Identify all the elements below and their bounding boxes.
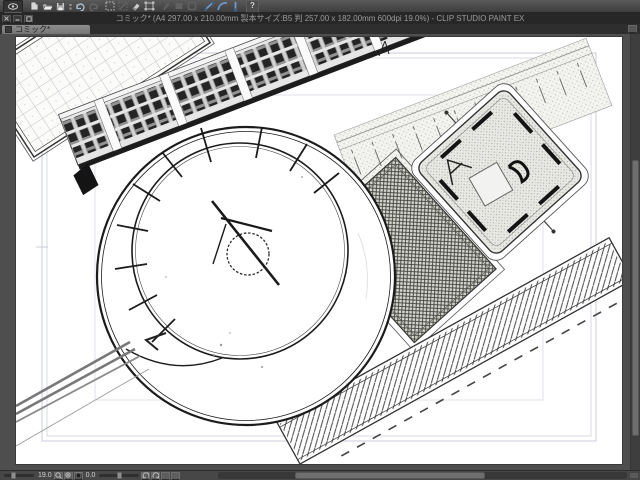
vertical-scrollbar-thumb[interactable]	[632, 160, 639, 436]
select-area-button[interactable]	[104, 1, 116, 12]
deselect-icon	[118, 1, 128, 11]
eye-button[interactable]	[3, 0, 23, 13]
new-file-button[interactable]	[28, 1, 40, 12]
rotation-slider[interactable]	[99, 474, 139, 477]
horizontal-scrollbar-thumb[interactable]	[295, 472, 485, 479]
undo-icon	[75, 2, 86, 11]
rotate-right-button[interactable]	[151, 472, 160, 480]
toolbar-overflow-button[interactable]	[67, 1, 73, 12]
help-button[interactable]: ?	[246, 0, 259, 13]
status-bar: 19.0 0.0	[0, 470, 640, 480]
shape-disabled-icon	[187, 1, 197, 11]
flip-horizontal-button[interactable]	[161, 472, 170, 480]
canvas-tab-bar: コミック*	[0, 24, 640, 34]
open-folder-icon	[42, 2, 53, 11]
disabled-tool-b-button[interactable]	[173, 1, 185, 12]
tab-comic[interactable]: コミック*	[2, 25, 90, 34]
reset-view-icon	[172, 472, 179, 480]
scrollbar-corner-button[interactable]	[629, 472, 639, 479]
transform-button[interactable]	[143, 1, 155, 12]
circular-plaza-drawing	[97, 127, 395, 425]
rotation-slider-handle[interactable]	[117, 472, 122, 479]
minimize-icon	[15, 16, 20, 21]
rotate-left-button[interactable]	[141, 472, 150, 480]
layer-disabled-icon	[174, 1, 184, 11]
save-icon	[56, 2, 65, 11]
tab-thumbnail-icon	[5, 26, 12, 33]
zoom-out-icon	[55, 472, 62, 479]
fit-screen-icon	[75, 472, 82, 479]
canvas-workspace	[0, 34, 640, 470]
disabled-tool-a-button[interactable]	[160, 1, 172, 12]
eraser-icon	[131, 1, 142, 11]
redo-icon	[88, 2, 99, 11]
zoom-out-button[interactable]	[54, 472, 63, 480]
close-icon	[4, 16, 9, 21]
minimize-button[interactable]	[13, 15, 22, 23]
pencil-disabled-icon	[161, 1, 171, 11]
reset-view-button[interactable]	[171, 472, 180, 480]
eye-icon	[7, 2, 19, 11]
clip-studio-paint-window: ? コミック* (A4 297.00 x 210.00mm 製	[0, 0, 640, 480]
flip-horizontal-icon	[162, 472, 169, 480]
window-controls	[2, 15, 33, 23]
document-title: コミック* (A4 297.00 x 210.00mm 製本サイズ:B5 判 2…	[0, 13, 640, 24]
open-file-button[interactable]	[41, 1, 53, 12]
undo-button[interactable]	[74, 1, 86, 12]
canvas-artwork	[16, 37, 622, 464]
snap-curve-icon	[217, 1, 228, 11]
redo-button[interactable]	[87, 1, 99, 12]
close-button[interactable]	[2, 15, 11, 23]
overflow-dots-icon	[69, 2, 72, 11]
zoom-slider-handle[interactable]	[11, 472, 16, 479]
snap-ruler-icon	[204, 1, 215, 11]
rotate-right-icon	[152, 472, 159, 480]
restore-icon	[26, 16, 32, 22]
canvas-page[interactable]	[16, 37, 622, 464]
snap-special-ruler-icon	[232, 1, 239, 12]
zoom-slider[interactable]	[4, 474, 34, 477]
rotation-value: 0.0	[86, 471, 96, 480]
tab-label: コミック*	[15, 25, 50, 34]
help-icon: ?	[250, 2, 255, 10]
zoom-in-icon	[65, 472, 72, 479]
new-file-icon	[30, 1, 39, 11]
zoom-value: 19.0	[38, 471, 52, 480]
rotate-left-icon	[142, 472, 149, 480]
zoom-in-button[interactable]	[64, 472, 73, 480]
horizontal-scrollbar[interactable]	[218, 472, 627, 479]
deselect-button[interactable]	[117, 1, 129, 12]
vertical-scrollbar[interactable]	[630, 34, 640, 470]
disabled-tool-c-button[interactable]	[186, 1, 198, 12]
tab-list-button[interactable]	[628, 25, 637, 33]
save-button[interactable]	[54, 1, 66, 12]
main-toolbar: ?	[0, 0, 640, 13]
snap-special-button[interactable]	[229, 1, 241, 12]
snap-ruler-button[interactable]	[203, 1, 215, 12]
select-area-icon	[105, 1, 115, 11]
fit-to-screen-button[interactable]	[74, 472, 83, 480]
snap-curve-button[interactable]	[216, 1, 228, 12]
restore-button[interactable]	[24, 15, 33, 23]
transform-icon	[144, 1, 155, 11]
erase-button[interactable]	[130, 1, 142, 12]
